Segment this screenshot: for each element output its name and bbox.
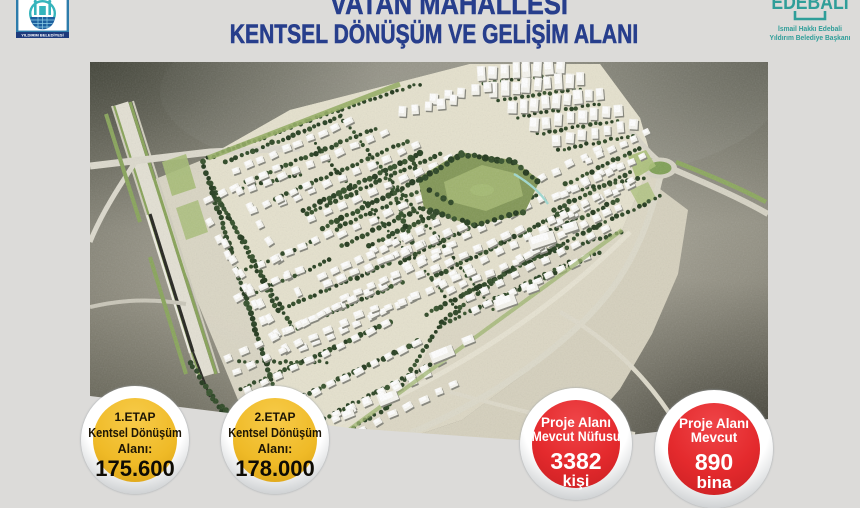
svg-text:YILDIRIM BELEDİYESİ: YILDIRIM BELEDİYESİ — [21, 33, 63, 38]
